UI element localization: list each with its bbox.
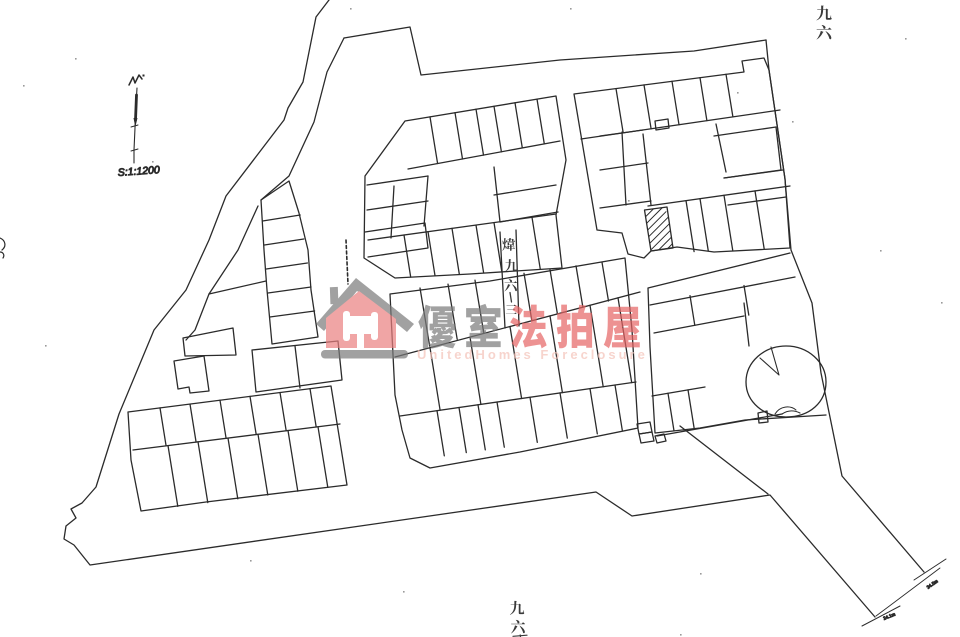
svg-text:UnitedHomes Foreclosure: UnitedHomes Foreclosure xyxy=(417,347,648,362)
